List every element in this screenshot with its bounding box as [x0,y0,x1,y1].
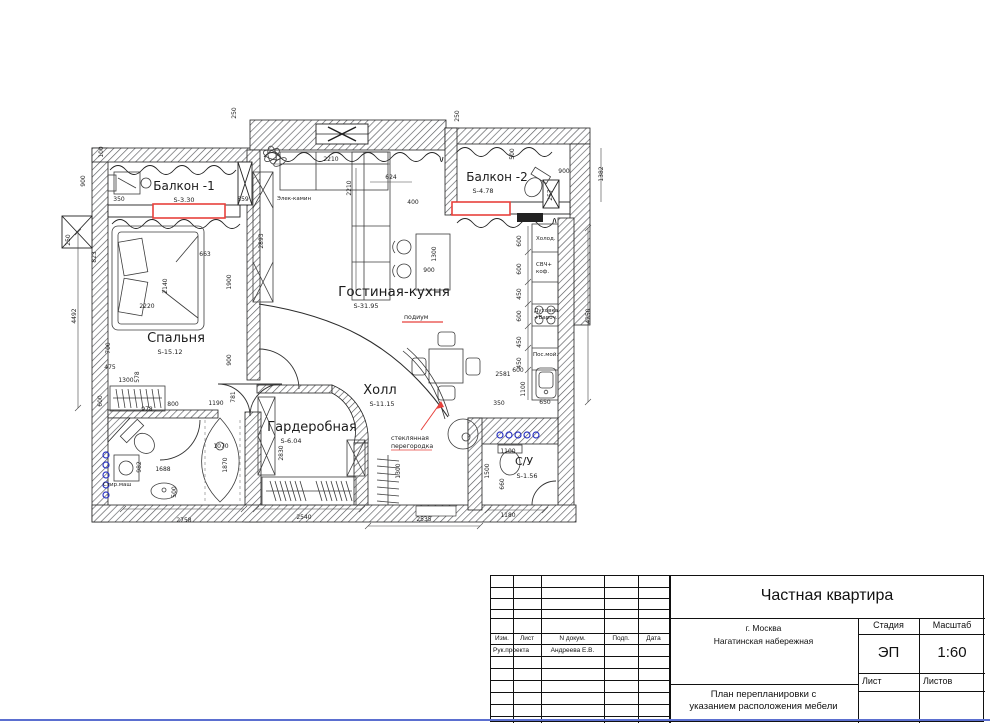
room-name: С/У [515,455,533,468]
bathtub [202,418,240,502]
appliance-label: коф. [536,269,549,275]
dimension-label: 1900 [226,274,233,289]
dimension-label: 700 [105,342,112,354]
dimension-label: 350 [493,400,505,407]
bedroom-closet [110,386,165,411]
scale-label: Масштаб [919,620,985,630]
dimension-label: 578 [134,371,141,383]
appliance-label: СВЧ+ [536,262,552,268]
dimension-label: 2220 [139,303,154,310]
dimension-label: 2581 [495,371,510,378]
dimension-label: 4492 [71,308,78,323]
pillow [118,278,148,316]
dimension-label: 650 [539,399,551,406]
dimension-label: 1100 [520,381,527,396]
dimension-label: 475 [104,364,116,371]
wall-niche [416,506,456,516]
col-list: Лист [513,635,541,642]
dimension-label: 250 [65,234,72,246]
dimension-label: 982 [136,461,143,473]
dimension-label: 859 [237,196,249,203]
red-marked-opening-1 [153,204,225,218]
dimension-label: 624 [385,174,397,181]
appliance-label: Пос.мой. [533,351,558,358]
dimension-label: 900 [558,168,570,175]
pillow [118,238,148,276]
red-annotation-lines [391,322,444,450]
room-name: Балкон -1 [153,179,214,193]
toilet [120,419,160,459]
dimension-label: 2210 [346,180,353,195]
red-annotations: подиумстекляннаяперегородка [391,314,433,450]
dimension-label: 2535 [416,516,431,523]
sheets-label: Листов [923,676,952,686]
dimension-label: 450 [516,288,523,300]
room-area: S-1.56 [517,472,538,480]
wardrobe-units [116,389,365,505]
red-note: перегородка [391,443,433,450]
dimension-label: 1300 [118,377,133,384]
red-note: подиум [404,314,429,321]
dimension-label: 800 [167,401,179,408]
dimension-label: 500 [171,486,178,498]
room-name: Холл [363,383,396,398]
project-lead-role: Рук.проекта [493,647,529,654]
dimension-label: 2758 [176,517,191,524]
room-name: Гардеробная [267,420,357,435]
dimension-label: 1300 [431,246,438,261]
dimension-label: 600 [516,310,523,322]
dimension-label: 2893 [258,233,265,248]
dimension-label: 900 [423,267,435,274]
col-podp: Подп. [604,635,638,642]
glass-partition [403,351,445,419]
room-area: S-11.15 [369,400,394,408]
room-name: Балкон -2 [466,170,527,184]
sheet-label: Лист [862,676,882,686]
dimension-label: 1300 [395,463,402,478]
dimension-label: 1382 [598,166,605,181]
col-data: Дата [638,635,669,642]
corner-sofa [280,152,390,300]
doc-title-line2: указанием расположения мебели [669,701,858,712]
dimension-label: 100 [98,146,105,158]
balcony1-furniture [108,172,151,194]
red-note: стеклянная [391,435,429,442]
hall-coat-rack [377,455,399,505]
dimension-label: 400 [407,199,419,206]
page-bottom-rule [0,719,990,721]
dimension-label: 350 [113,196,125,203]
address-line2: Нагатинская набережная [669,636,858,646]
dimension-label: 450 [516,336,523,348]
dimension-label: 4250 [585,308,592,323]
project-lead-name: Андреева Е.В. [541,647,604,654]
dimension-label: 1070 [213,443,228,450]
room-name: Гостиная-кухня [338,284,450,300]
dimension-label: 781 [230,391,237,403]
appliance-label: Стир.маш [103,482,131,488]
bed [112,226,204,330]
project-title: Частная квартира [669,587,985,605]
room-name: Спальня [147,331,205,346]
room-area: S-31.95 [353,302,378,310]
dimension-label: 1190 [208,400,223,407]
dimension-label: 500 [509,148,516,160]
floor-plan-drawing: Балкон -1S-3.30Балкон -2S-4.78СпальняS-1… [0,0,990,570]
dimension-label: 600 [516,235,523,247]
dimension-label: 250 [454,110,461,122]
col-ndokum: N докум. [541,635,604,642]
vent-block [517,213,543,222]
room-area: S-4.78 [473,187,494,195]
dimension-label: 1870 [222,457,229,472]
dimension-label: 2540 [296,514,311,521]
appliance-label: Элек-камин [277,196,311,202]
appliance-label: Холод. [536,236,556,242]
dimension-label: 663 [199,251,211,258]
title-block: Изм. Лист N докум. Подп. Дата Рук.проект… [490,575,984,722]
dimension-label: 1688 [155,466,170,473]
stage-value: ЭП [858,644,919,661]
dimension-label: 978 [141,406,153,413]
stage-label: Стадия [858,620,919,630]
dimension-label: 250 [231,107,238,119]
dimension-label: 1180 [500,512,515,519]
dimension-label: 257 [547,189,554,201]
dimension-label: 600 [516,263,523,275]
dimension-label: 823 [91,251,98,263]
dimension-label: 2210 [323,156,338,163]
red-marked-opening-2 [452,202,510,215]
room-area: S-15.12 [157,348,182,356]
dimension-label: 600 [512,367,524,374]
dimension-label: 600 [97,395,104,407]
scale-value: 1:60 [919,644,985,661]
dimension-label: 900 [226,354,233,366]
col-izm: Изм. [491,635,513,642]
dimension-label: 660 [499,478,506,490]
room-area: S-6.04 [281,437,302,445]
dining-table [412,332,480,400]
appliance-label: +Вароч. [534,315,558,321]
dimension-label: 900 [80,175,87,187]
room-area: S-3.30 [174,196,195,204]
bar-counter [393,234,450,290]
appliance-label: Духовка [534,308,558,314]
address-line1: г. Москва [669,623,858,633]
doc-title-line1: План перепланировки с [669,689,858,700]
dimension-label: 2830 [278,445,285,460]
dimension-label: 1500 [484,463,491,478]
dimension-label: 1100 [500,448,515,455]
dimension-label: 2140 [162,278,169,293]
